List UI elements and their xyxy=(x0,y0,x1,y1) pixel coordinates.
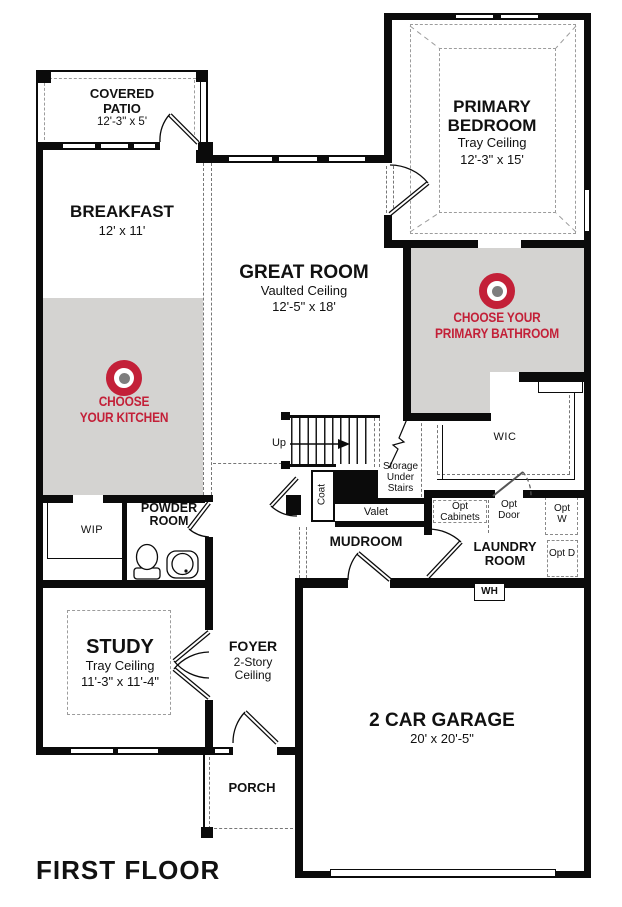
great-room-dims: 12'-5" x 18' xyxy=(224,300,384,315)
toilet-fixture xyxy=(134,545,160,580)
study-dims: 11'-3" x 11'-4" xyxy=(60,675,180,690)
primary-bathroom-choice-target-icon[interactable] xyxy=(479,273,515,309)
stairs-up-arrow xyxy=(290,439,350,449)
study-label: STUDY xyxy=(60,636,180,658)
coat-label: Coat xyxy=(316,465,327,525)
breakfast-dims: 12' x 11' xyxy=(52,224,192,239)
covered-patio-dims: 12'-3" x 5' xyxy=(72,116,172,129)
floor-plan: CHOOSEYOUR KITCHEN CHOOSE YOURPRIMARY BA… xyxy=(0,0,622,907)
garage-label: 2 CAR GARAGE xyxy=(352,710,532,731)
foyer-label: FOYER xyxy=(223,639,283,655)
covered-patio-label: COVERED PATIO xyxy=(72,87,172,116)
foyer-ceiling: 2-Story Ceiling xyxy=(223,656,283,682)
kitchen-choice-line1: CHOOSE xyxy=(65,394,184,410)
opt-washer-label: Opt W xyxy=(548,503,576,525)
opt-dryer-label: Opt D xyxy=(548,548,576,559)
primary-bedroom-label: PRIMARY BEDROOM xyxy=(422,97,562,135)
target-dot xyxy=(119,373,130,384)
target-dot xyxy=(492,286,503,297)
primary-bedroom-ceiling: Tray Ceiling xyxy=(422,136,562,151)
sink-fixture xyxy=(167,551,198,578)
kitchen-choice-label[interactable]: CHOOSEYOUR KITCHEN xyxy=(54,394,194,425)
plan-title: FIRST FLOOR xyxy=(36,856,236,885)
primary-bedroom-dims: 12'-3" x 15' xyxy=(422,153,562,168)
study-ceiling: Tray Ceiling xyxy=(60,659,180,674)
powder-room-label: POWDER ROOM xyxy=(128,502,210,528)
great-room-ceiling: Vaulted Ceiling xyxy=(224,284,384,299)
kitchen-choice-line2: YOUR KITCHEN xyxy=(65,410,184,426)
valet-label: Valet xyxy=(346,506,406,518)
up-label: Up xyxy=(258,437,286,449)
wic-label: WIC xyxy=(485,431,525,443)
porch-label: PORCH xyxy=(222,781,282,796)
opt-door-label: Opt Door xyxy=(489,499,529,521)
opt-door-swing xyxy=(493,472,531,496)
primary-bathroom-choice-line2: PRIMARY BATHROOM xyxy=(435,326,559,342)
water-heater-label: WH xyxy=(474,586,505,597)
breakfast-label: BREAKFAST xyxy=(52,202,192,221)
door-swing-arcs xyxy=(160,114,461,743)
door-leaves xyxy=(170,115,461,743)
garage-dims: 20' x 20'-5" xyxy=(352,732,532,747)
primary-bathroom-choice-label[interactable]: CHOOSE YOURPRIMARY BATHROOM xyxy=(424,310,570,341)
mudroom-label: MUDROOM xyxy=(318,534,414,549)
laundry-room-label: LAUNDRY ROOM xyxy=(462,540,548,569)
kitchen-choice-target-icon[interactable] xyxy=(106,360,142,396)
opt-cabinets-label: Opt Cabinets xyxy=(432,501,488,523)
primary-bathroom-choice-line1: CHOOSE YOUR xyxy=(435,310,559,326)
wip-label: WIP xyxy=(64,524,120,536)
great-room-label: GREAT ROOM xyxy=(224,262,384,283)
storage-label: Storage Under Stairs xyxy=(377,461,424,494)
